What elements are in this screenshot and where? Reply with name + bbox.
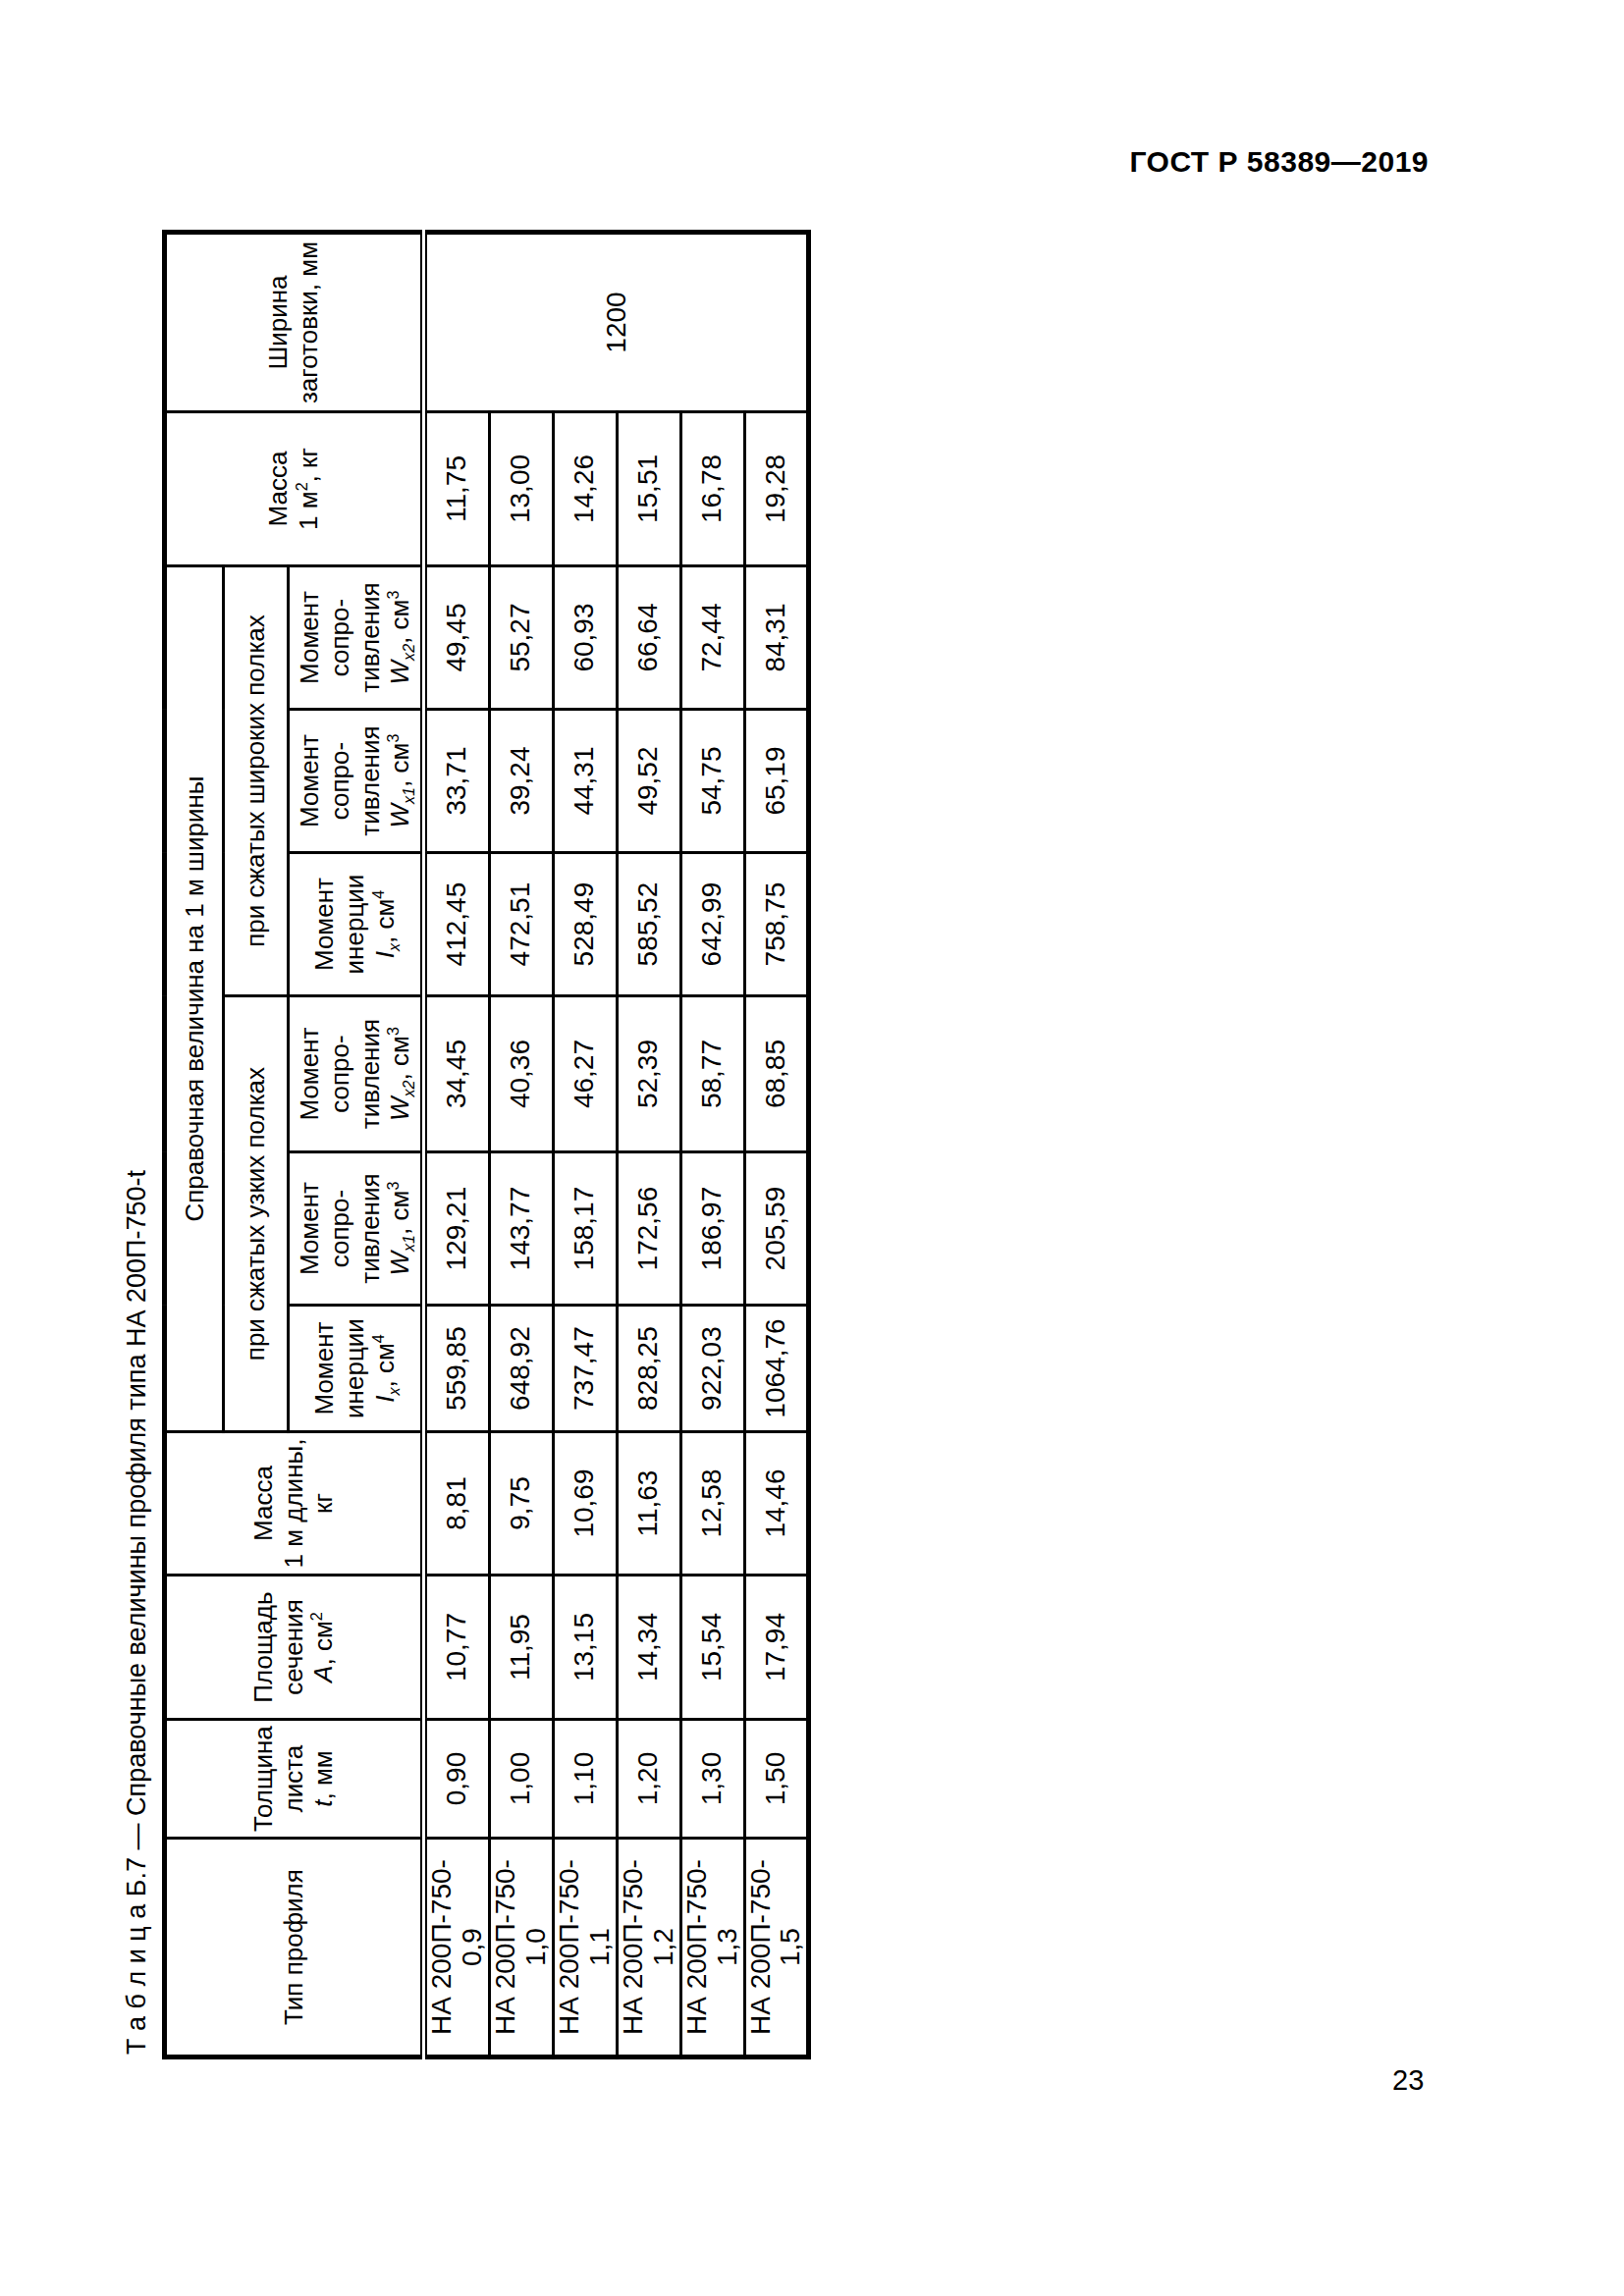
cell-inertia-wide: 758,75	[744, 853, 809, 996]
cell-area: 13,15	[553, 1575, 617, 1720]
cell-inertia-narrow: 648,92	[489, 1306, 553, 1432]
cell-wx1-wide: 54,75	[680, 710, 744, 853]
cell-thickness: 1,00	[489, 1720, 553, 1839]
cell-mass-length: 14,46	[744, 1432, 809, 1575]
header-inertia-narrow: Момент инерции Ix, см4	[289, 1306, 424, 1432]
cell-wx2-narrow: 52,39	[617, 996, 680, 1152]
cell-area: 17,94	[744, 1575, 809, 1720]
cell-mass-sq: 16,78	[680, 412, 744, 566]
cell-inertia-wide: 412,45	[424, 853, 490, 996]
cell-mass-sq: 13,00	[489, 412, 553, 566]
header-profile-type: Тип профиля	[165, 1839, 424, 2057]
header-inertia-wide: Момент инерции Ix, см4	[289, 853, 424, 996]
cell-inertia-wide: 642,99	[680, 853, 744, 996]
cell-wx2-wide: 55,27	[489, 566, 553, 710]
cell-mass-length: 8,81	[424, 1432, 490, 1575]
cell-thickness: 0,90	[424, 1720, 490, 1839]
cell-profile-type: НА 200П-750-1,1	[553, 1839, 617, 2057]
cell-wx1-wide: 44,31	[553, 710, 617, 853]
cell-area: 14,34	[617, 1575, 680, 1720]
header-mass-per-square-meter: Масса1 м2, кг	[165, 412, 424, 566]
cell-mass-length: 10,69	[553, 1432, 617, 1575]
cell-wx2-wide: 49,45	[424, 566, 490, 710]
cell-wx1-narrow: 158,17	[553, 1152, 617, 1306]
cell-wx2-narrow: 34,45	[424, 996, 490, 1152]
header-resistance-wx1-wide: Момент сопро- тивления Wx1, см3	[289, 710, 424, 853]
header-sheet-thickness: Толщина листа t, мм	[165, 1720, 424, 1839]
cell-mass-length: 12,58	[680, 1432, 744, 1575]
cell-mass-length: 9,75	[489, 1432, 553, 1575]
cell-wx1-narrow: 143,77	[489, 1152, 553, 1306]
document-code: ГОСТ Р 58389—2019	[884, 145, 1429, 179]
header-section-area: Площадь сечения А, см2	[165, 1575, 424, 1720]
cell-profile-type: НА 200П-750-1,5	[744, 1839, 809, 2057]
cell-mass-length: 11,63	[617, 1432, 680, 1575]
cell-wx2-narrow: 58,77	[680, 996, 744, 1152]
cell-inertia-wide: 528,49	[553, 853, 617, 996]
cell-wx2-wide: 60,93	[553, 566, 617, 710]
cell-blank-width: 1200	[424, 233, 809, 412]
cell-profile-type: НА 200П-750-0,9	[424, 1839, 490, 2057]
cell-wx1-narrow: 129,21	[424, 1152, 490, 1306]
cell-thickness: 1,10	[553, 1720, 617, 1839]
cell-thickness: 1,50	[744, 1720, 809, 1839]
cell-thickness: 1,30	[680, 1720, 744, 1839]
cell-wx1-wide: 65,19	[744, 710, 809, 853]
header-mass-per-meter-length: Масса1 м длины, кг	[165, 1432, 424, 1575]
header-blank-width: Ширина заготовки, мм	[165, 233, 424, 412]
cell-thickness: 1,20	[617, 1720, 680, 1839]
cell-wx2-narrow: 40,36	[489, 996, 553, 1152]
header-resistance-wx2-narrow: Момент сопро- тивления Wx2, см3	[289, 996, 424, 1152]
header-narrow-flanges: при сжатых узких полках	[224, 996, 289, 1432]
cell-area: 11,95	[489, 1575, 553, 1720]
cell-inertia-narrow: 922,03	[680, 1306, 744, 1432]
cell-profile-type: НА 200П-750-1,0	[489, 1839, 553, 2057]
header-resistance-wx1-narrow: Момент сопро- тивления Wx1, см3	[289, 1152, 424, 1306]
cell-wx2-narrow: 68,85	[744, 996, 809, 1152]
cell-wx1-narrow: 172,56	[617, 1152, 680, 1306]
cell-wx1-narrow: 186,97	[680, 1152, 744, 1306]
table-title: Т а б л и ц а Б.7 — Справочные величины …	[114, 1191, 159, 2055]
cell-mass-sq: 14,26	[553, 412, 617, 566]
document-page: ГОСТ Р 58389—2019 Т а б л и ц а Б.7 — Сп…	[0, 0, 1624, 2296]
cell-wx2-narrow: 46,27	[553, 996, 617, 1152]
cell-inertia-narrow: 559,85	[424, 1306, 490, 1432]
cell-wx1-wide: 49,52	[617, 710, 680, 853]
cell-inertia-narrow: 828,25	[617, 1306, 680, 1432]
header-reference-value: Справочная величина на 1 м ширины	[165, 566, 224, 1432]
cell-profile-type: НА 200П-750-1,2	[617, 1839, 680, 2057]
rotated-table-container: Тип профиля Толщина листа t, мм Площадь …	[162, 230, 807, 2055]
cell-inertia-narrow: 1064,76	[744, 1306, 809, 1432]
cell-wx2-wide: 84,31	[744, 566, 809, 710]
cell-wx2-wide: 72,44	[680, 566, 744, 710]
cell-wx2-wide: 66,64	[617, 566, 680, 710]
header-wide-flanges: при сжатых широких полках	[224, 566, 289, 996]
cell-area: 10,77	[424, 1575, 490, 1720]
header-resistance-wx2-wide: Момент сопро- тивления Wx2, см3	[289, 566, 424, 710]
cell-mass-sq: 19,28	[744, 412, 809, 566]
cell-wx1-narrow: 205,59	[744, 1152, 809, 1306]
cell-inertia-narrow: 737,47	[553, 1306, 617, 1432]
cell-wx1-wide: 39,24	[489, 710, 553, 853]
cell-wx1-wide: 33,71	[424, 710, 490, 853]
cell-area: 15,54	[680, 1575, 744, 1720]
cell-inertia-wide: 585,52	[617, 853, 680, 996]
profile-reference-table: Тип профиля Толщина листа t, мм Площадь …	[162, 230, 811, 2059]
page-number: 23	[1392, 2064, 1424, 2097]
cell-profile-type: НА 200П-750-1,3	[680, 1839, 744, 2057]
cell-mass-sq: 11,75	[424, 412, 490, 566]
cell-inertia-wide: 472,51	[489, 853, 553, 996]
cell-mass-sq: 15,51	[617, 412, 680, 566]
